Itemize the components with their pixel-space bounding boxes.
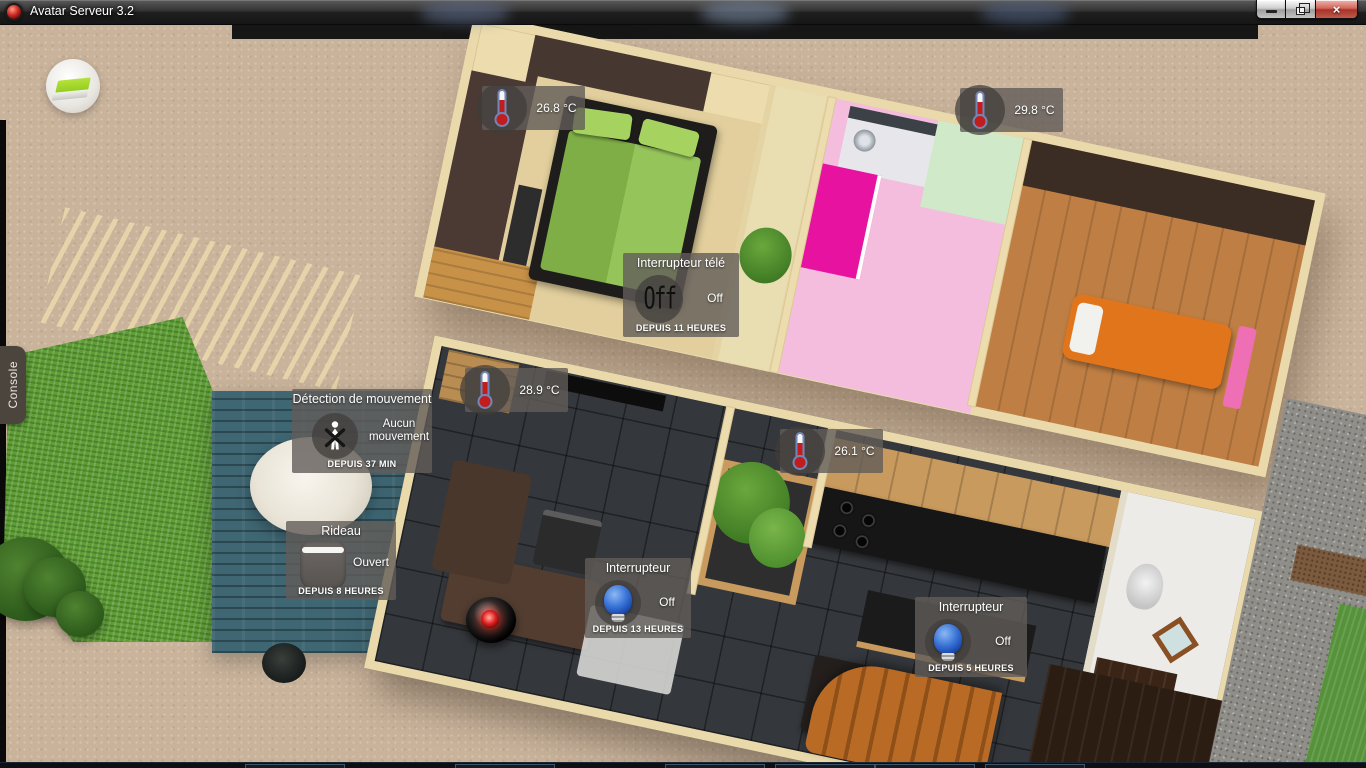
widget-title: Interrupteur <box>585 561 691 575</box>
close-icon: × <box>1333 1 1341 18</box>
window-controls: × <box>1256 0 1358 19</box>
title-bar[interactable]: Avatar Serveur 3.2 × <box>0 0 1366 25</box>
thermometer-icon <box>955 85 1005 135</box>
minimize-button[interactable] <box>1256 0 1286 19</box>
restore-icon <box>1296 7 1305 15</box>
render-left-edge <box>0 120 6 762</box>
widget-since: DEPUIS 13 HEURES <box>585 624 691 634</box>
curtain-widget[interactable]: Rideau Ouvert DEPUIS 8 HEURES <box>286 521 396 600</box>
glass-blur-decoration <box>980 2 1070 24</box>
person-crossed-icon <box>322 420 348 452</box>
home-box-icon <box>55 77 91 93</box>
home-box-logo[interactable] <box>46 59 100 113</box>
console-tab-label: Console <box>6 361 20 409</box>
console-tab[interactable]: Console <box>0 346 26 424</box>
off-display-icon[interactable]: Off <box>635 275 683 323</box>
taskbar-button[interactable] <box>985 764 1085 768</box>
taskbar-button[interactable] <box>665 764 765 768</box>
cooktop-burner <box>837 498 856 517</box>
close-button[interactable]: × <box>1316 0 1358 19</box>
taskbar-sliver <box>0 762 1366 768</box>
motion-state: Aucun mouvement <box>368 418 430 444</box>
temperature-widget-kitchen[interactable]: 26.1 °C <box>780 429 883 473</box>
switch-state: Off <box>695 291 735 305</box>
minimize-icon <box>1266 10 1277 13</box>
taskbar-button[interactable] <box>775 764 875 768</box>
taskbar-button[interactable] <box>245 764 345 768</box>
render-top-edge <box>232 25 1258 39</box>
motion-sensor-widget[interactable]: Détection de mouvement Aucun mouvement D… <box>292 389 432 473</box>
widget-title: Rideau <box>286 524 396 538</box>
garden-bush <box>56 591 104 637</box>
widget-title: Interrupteur télé <box>623 256 739 270</box>
widget-since: DEPUIS 5 HEURES <box>915 663 1027 673</box>
temperature-widget-bedroom[interactable]: 26.8 °C <box>482 86 585 130</box>
no-motion-icon[interactable] <box>312 413 358 459</box>
thermometer-icon <box>477 83 527 133</box>
glass-blur-decoration <box>700 2 790 24</box>
switch-state: Off <box>985 634 1021 648</box>
cooktop-burner <box>830 521 849 540</box>
tv-switch-widget[interactable]: Interrupteur télé Off Off DEPUIS 11 HEUR… <box>623 253 739 337</box>
temperature-value: 26.1 °C <box>830 429 879 473</box>
widget-title: Interrupteur <box>915 600 1027 614</box>
light-switch-widget-living[interactable]: Interrupteur Off DEPUIS 13 HEURES <box>585 558 691 638</box>
glass-blur-decoration <box>420 2 510 24</box>
app-icon[interactable] <box>5 3 23 21</box>
temperature-value: 29.8 °C <box>1010 88 1059 132</box>
fire-pit <box>262 643 306 683</box>
taskbar-button[interactable] <box>875 764 975 768</box>
light-switch-widget-kitchen[interactable]: Interrupteur Off DEPUIS 5 HEURES <box>915 597 1027 677</box>
cooktop-burner <box>859 511 878 530</box>
window-title: Avatar Serveur 3.2 <box>30 4 134 18</box>
widget-since: DEPUIS 11 HEURES <box>623 323 739 333</box>
thermometer-icon <box>460 365 510 415</box>
widget-since: DEPUIS 8 HEURES <box>286 586 396 596</box>
temperature-value: 26.8 °C <box>532 86 581 130</box>
floorplan-3d-scene[interactable]: Console 26.8 °C 29.8 °C Interrupteur tél… <box>0 25 1366 762</box>
widget-since: DEPUIS 37 MIN <box>292 459 432 469</box>
washer-door <box>852 128 878 154</box>
red-eye-camera-device <box>466 597 516 643</box>
restore-button[interactable] <box>1286 0 1316 19</box>
curtain-icon[interactable] <box>300 541 346 589</box>
curtain-state: Ouvert <box>348 555 394 569</box>
widget-title: Détection de mouvement <box>292 392 432 406</box>
temperature-widget-bathroom[interactable]: 29.8 °C <box>960 88 1063 132</box>
blue-bulb-icon[interactable] <box>925 619 971 665</box>
taskbar-button[interactable] <box>455 764 555 768</box>
temperature-value: 28.9 °C <box>515 368 564 412</box>
blue-bulb-icon[interactable] <box>595 580 641 626</box>
temperature-widget-living[interactable]: 28.9 °C <box>465 368 568 412</box>
switch-state: Off <box>649 595 685 609</box>
thermometer-icon <box>775 426 825 476</box>
avatar-serveur-window: Avatar Serveur 3.2 × <box>0 0 1366 768</box>
cooktop-burner <box>853 532 872 551</box>
